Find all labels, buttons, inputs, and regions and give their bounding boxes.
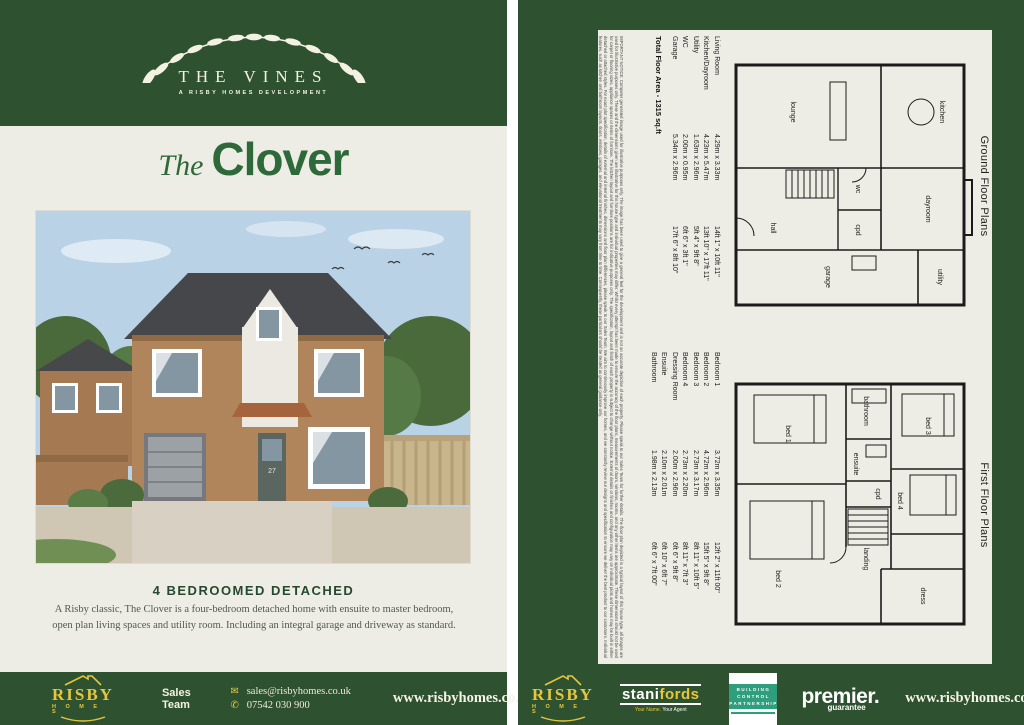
title-name: Clover	[211, 133, 348, 185]
risby-name: RISBY	[532, 686, 594, 703]
bcp-url-line	[731, 712, 775, 714]
ground-floor-title: Ground Floor Plans	[978, 36, 990, 336]
first-floor-plan: bed 3 bed 4 dress bathroom ensuite cpd l…	[726, 369, 976, 641]
risby-homes-logo: RISBY H O M E S	[52, 675, 114, 723]
schedule-row: Ensuite2.10m x 2.01m6ft 10" x 6ft 7"	[658, 352, 669, 658]
schedule-row: Bedroom 32.73m x 3.17m8ft 11" x 10ft 5"	[690, 352, 701, 658]
schedule-row: WC2.00m x 0.95m6ft 6" x 3ft 1"	[679, 36, 690, 336]
room-label-kitchen: kitchen	[938, 101, 945, 123]
stanifords-logo: stanifords Your Name. Your Agent	[620, 684, 702, 713]
risby-homes-logo: RISBY H O M E S	[532, 675, 594, 723]
development-name: THE VINES	[178, 67, 328, 87]
room-label-cpd: cpd	[854, 224, 861, 235]
subheading: 4 BEDROOMED DETACHED	[0, 583, 507, 598]
schedule-row: Bathroom1.98m x 2.13m6ft 6" x 7ft 00"	[648, 352, 659, 658]
door-number: 27	[268, 468, 276, 475]
sales-team-label: Sales Team	[162, 687, 191, 711]
schedule-row: Utility1.63m x 2.96m5ft 4" x 9ft 8"	[690, 36, 701, 336]
risby-homes-word: H O M E S	[532, 705, 594, 716]
schedule-row: Bedroom 13.72m x 3.35m12ft 2" x 11ft 00"	[711, 352, 722, 658]
development-subtitle: A RISBY HOMES DEVELOPMENT	[179, 90, 329, 96]
important-notice: IMPORTANT NOTICE: Computer generated ima…	[598, 36, 624, 658]
room-label-bed1: bed 1	[784, 425, 791, 443]
first-floor-schedule: Bedroom 13.72m x 3.35m12ft 2" x 11ft 00"…	[648, 352, 722, 658]
risby-homes-word: H O M E S	[52, 705, 114, 716]
first-floor-section: First Floor Plans	[598, 352, 992, 658]
bcp-line-3: PARTNERSHIP	[729, 701, 777, 706]
room-label-bed4: bed 4	[896, 492, 903, 510]
room-label-bed3: bed 3	[924, 417, 931, 435]
house-render-illustration: 27	[36, 211, 470, 563]
building-control-partnership-logo: BUILDING CONTROL PARTNERSHIP	[729, 673, 777, 725]
room-label-lounge: lounge	[789, 101, 796, 122]
room-label-landing: landing	[862, 548, 869, 571]
ground-floor-schedule: Living Room4.29m x 3.33m14ft 1" x 10ft 1…	[669, 36, 722, 336]
schedule-row: Garage5.34m x 2.96m17ft 6" x 8ft 10"	[669, 36, 680, 336]
schedule-row: Bedroom 42.73m x 2.20m8ft 11" x 7ft 3"	[679, 352, 690, 658]
schedule-row: Kitchen/Dayroom4.23m x 5.47m13ft 10" x 1…	[700, 36, 711, 336]
risby-roof-icon	[61, 675, 105, 686]
house-photo: 27	[36, 211, 470, 563]
room-label-bed2: bed 2	[774, 570, 781, 588]
risby-swoosh-icon	[59, 716, 107, 723]
phone-icon: ✆	[229, 700, 241, 711]
ground-floor-section: Ground Floor Plans	[598, 36, 992, 336]
the-vines-logo: THE VINES A RISBY HOMES DEVELOPMENT	[139, 31, 369, 96]
total-floor-area: Total Floor Area - 1315 sq.ft	[655, 36, 664, 336]
website-link-left[interactable]: www.risbyhomes.co.uk	[393, 690, 535, 707]
premier-guarantee-logo: premier. guarantee	[801, 686, 879, 712]
room-label-garage: garage	[824, 266, 831, 288]
brochure-left-page: THE VINES A RISBY HOMES DEVELOPMENT TheC…	[0, 0, 507, 725]
stanifords-tagline-1: Your Name.	[635, 707, 661, 713]
room-label-hall: hall	[769, 223, 776, 234]
bcp-line-1: BUILDING	[737, 687, 771, 692]
risby-roof-icon	[541, 675, 585, 686]
sales-phone-link[interactable]: 07542 030 900	[247, 700, 310, 711]
schedule-row: Living Room4.29m x 3.33m14ft 1" x 10ft 1…	[711, 36, 722, 336]
website-link-right[interactable]: www.risbyhomes.co.uk	[905, 690, 1024, 707]
stanifords-tagline-2: Your Agent	[662, 707, 686, 713]
brochure-right-page: Ground Floor Plans	[518, 0, 1024, 725]
title-prefix: The	[158, 149, 203, 182]
ground-floor-plan: kitchen dayroom utility garage lounge ha…	[726, 50, 976, 322]
room-label-cpd: cpd	[874, 488, 881, 499]
sales-email-link[interactable]: sales@risbyhomes.co.uk	[247, 686, 351, 697]
room-label-ensuite: ensuite	[852, 453, 859, 476]
house-description: A Risby classic, The Clover is a four-be…	[45, 602, 463, 635]
schedule-row: Dressing Room2.00m x 2.96m6ft 6" x 9ft 8…	[669, 352, 680, 658]
risby-swoosh-icon	[539, 716, 587, 723]
room-label-bathroom: bathroom	[862, 396, 869, 426]
stanifords-word-1: stani	[622, 686, 660, 703]
floor-plans-rotated-content: Ground Floor Plans	[598, 30, 992, 664]
room-label-wc: wc	[854, 184, 861, 194]
development-header: THE VINES A RISBY HOMES DEVELOPMENT	[0, 0, 507, 126]
schedule-row: Bedroom 24.72m x 2.96m15ft 5" x 9ft 8"	[700, 352, 711, 658]
room-label-dayroom: dayroom	[924, 195, 931, 222]
left-footer: RISBY H O M E S Sales Team ✉ sales@risby…	[0, 672, 507, 725]
room-label-utility: utility	[936, 269, 943, 285]
stanifords-word-2: fords	[659, 686, 699, 703]
first-floor-title: First Floor Plans	[978, 352, 990, 658]
email-icon: ✉	[229, 686, 241, 697]
risby-name: RISBY	[52, 686, 114, 703]
right-footer: RISBY H O M E S stanifords Your Name. Yo…	[518, 672, 1024, 725]
bcp-line-2: CONTROL	[737, 694, 770, 699]
room-label-dress: dress	[919, 587, 926, 605]
house-type-title: TheClover	[0, 132, 507, 186]
